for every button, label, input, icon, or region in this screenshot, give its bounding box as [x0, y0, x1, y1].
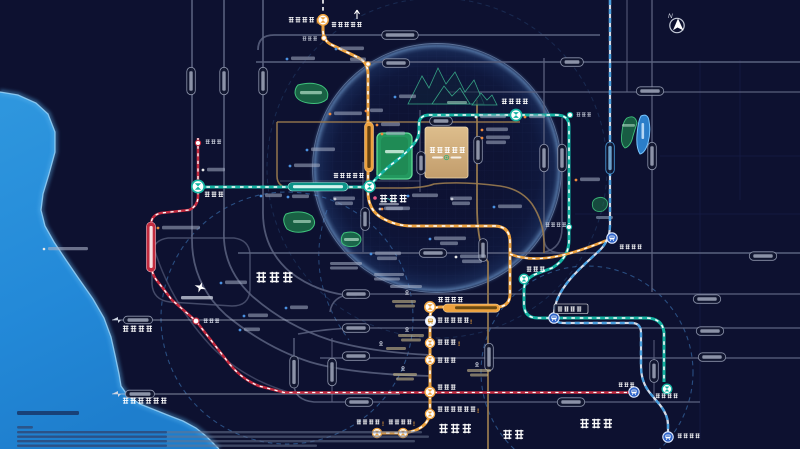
svg-text:N: N	[668, 13, 673, 20]
svg-text:!: !	[470, 319, 472, 326]
svg-text:!: !	[316, 19, 318, 26]
svg-text:!: !	[477, 408, 479, 415]
svg-text:!: !	[382, 422, 384, 428]
svg-text:!: !	[413, 422, 415, 428]
svg-text:!: !	[458, 341, 460, 348]
